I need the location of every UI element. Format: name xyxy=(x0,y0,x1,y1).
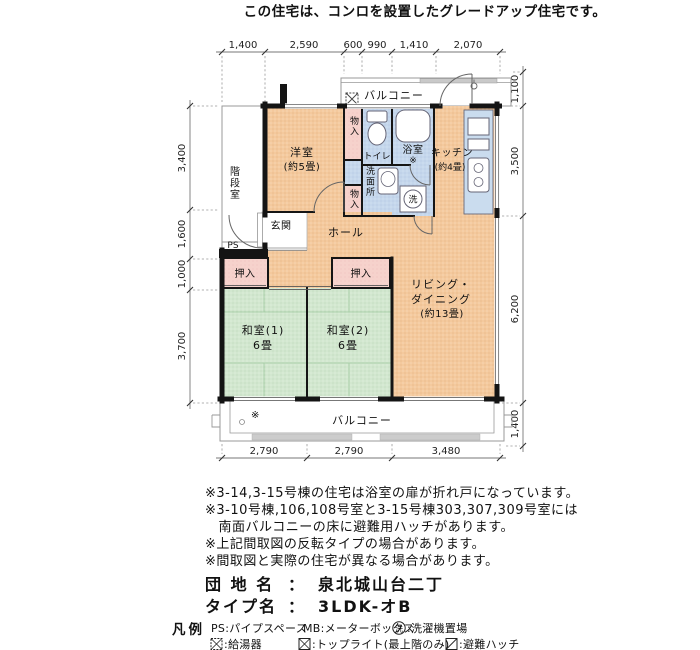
drain-icon xyxy=(240,420,245,425)
toilet-icon xyxy=(367,111,387,145)
label-closet-mid: 物入 xyxy=(348,188,359,210)
balcony-bottom: ※ バルコニー xyxy=(212,401,512,441)
label-kitchen: キッチン xyxy=(431,147,473,159)
label-living-1: リビング・ xyxy=(411,277,471,291)
estate-label: 団 地 名 xyxy=(205,575,274,594)
type-label: タイプ名 xyxy=(205,597,277,616)
svg-text:洗: 洗 xyxy=(395,623,403,633)
label-living-size: (約13畳) xyxy=(420,307,464,320)
dim-bottom-3: 3,480 xyxy=(432,446,461,457)
type-sep: ： xyxy=(288,597,306,616)
type-value: 3LDK-オB xyxy=(318,597,412,616)
legend-laundry: :洗濯機置場 xyxy=(407,621,468,635)
washing-machine-icon: 洗 xyxy=(400,186,426,212)
balcony-top-label: バルコニー xyxy=(364,89,424,102)
note-line-3: 南面バルコニーの床に避難用ハッチがあります。 xyxy=(205,519,514,535)
label-bath: 浴室 xyxy=(403,143,424,156)
dim-top-1: 1,400 xyxy=(229,40,258,51)
dim-top-5: 1,410 xyxy=(400,40,429,51)
note-line-5: ※間取図と実際の住宅が異なる場合があります。 xyxy=(205,553,499,569)
note-line-2: ※3-10号棟,106,108号室と3-15号棟303,307,309号室には xyxy=(205,502,578,518)
label-western-room: 洋室 xyxy=(290,145,314,159)
note-line-4: ※上記間取図の反転タイプの場合があります。 xyxy=(205,536,485,552)
label-japanese-room-2: 和室(2) xyxy=(327,323,370,337)
legend-toplight: :トップライト(最上階のみ) xyxy=(312,637,450,650)
stairwell-label: 階段室 xyxy=(228,166,240,201)
water-heater-icon xyxy=(346,93,358,105)
label-entrance: 玄関 xyxy=(271,219,292,232)
toplight-symbol-icon xyxy=(299,639,310,650)
label-hall: ホール xyxy=(328,226,364,239)
label-washroom: 洗面所 xyxy=(364,165,375,198)
label-oshiire-2: 押入 xyxy=(351,267,372,280)
legend: 凡例 PS:パイプスペース MB:メーターボックス 洗 :洗濯機置場 :給湯器 … xyxy=(172,621,520,650)
label-toilet: トイレ xyxy=(363,152,390,162)
dim-left-2: 1,600 xyxy=(177,220,188,249)
note-line-1: ※3-14,3-15号棟の住宅は浴室の扉が折れ戸になっています。 xyxy=(205,485,579,501)
bathtub-icon xyxy=(396,110,430,142)
dim-left-3: 1,000 xyxy=(177,260,188,289)
dim-bottom-2: 2,790 xyxy=(335,446,364,457)
washbasin-icon xyxy=(378,168,398,194)
kitchen-counter-icon xyxy=(464,110,493,214)
dim-bottom-1: 2,790 xyxy=(250,446,279,457)
page-title: この住宅は、コンロを設置したグレードアップ住宅です。 xyxy=(244,3,607,20)
legend-heater: :給湯器 xyxy=(224,637,262,650)
notes: ※3-14,3-15号棟の住宅は浴室の扉が折れ戸になっています。 ※3-10号棟… xyxy=(205,485,579,569)
label-ps: PS xyxy=(227,241,238,251)
entrance-door-leaf xyxy=(258,213,263,247)
heater-symbol-icon xyxy=(211,639,222,650)
dim-left-4: 3,700 xyxy=(177,332,188,361)
legend-ps: PS:パイプスペース xyxy=(211,622,307,635)
balcony-divider-pillar xyxy=(280,84,287,106)
label-bath-mark: ※ xyxy=(409,156,417,166)
legend-title: 凡例 xyxy=(172,621,205,638)
dim-top-2: 2,590 xyxy=(290,40,319,51)
label-closet-top: 物入 xyxy=(348,115,359,137)
dim-top-4: 990 xyxy=(367,40,386,51)
estate-info: 団 地 名 ： 泉北城山台二丁 タイプ名 ： 3LDK-オB xyxy=(205,575,444,616)
label-japanese-room-2-size: 6畳 xyxy=(338,339,358,352)
label-japanese-room-1-size: 6畳 xyxy=(253,339,273,352)
dim-right-2: 3,500 xyxy=(510,147,521,176)
balcony-bottom-label: バルコニー xyxy=(332,414,392,427)
dim-left-1: 3,400 xyxy=(177,144,188,173)
label-kitchen-size: (約4畳) xyxy=(435,161,466,173)
label-oshiire-1: 押入 xyxy=(235,267,256,280)
floor-plan-drawing: この住宅は、コンロを設置したグレードアップ住宅です。 1,400 2,590 6… xyxy=(0,0,700,650)
label-living-2: ダイニング xyxy=(411,292,471,306)
balcony-top: バルコニー xyxy=(341,78,511,106)
dim-right-1: 1,100 xyxy=(510,75,521,104)
svg-text:洗: 洗 xyxy=(408,194,417,206)
ps-duct-block xyxy=(219,249,268,258)
dim-top-6: 2,070 xyxy=(454,40,483,51)
estate-sep: ： xyxy=(288,575,306,594)
legend-hatch: :避難ハッチ xyxy=(459,637,520,650)
floor-plan-page: この住宅は、コンロを設置したグレードアップ住宅です。 1,400 2,590 6… xyxy=(0,0,700,650)
label-western-size: (約5畳) xyxy=(284,160,321,173)
dim-top-3: 600 xyxy=(343,40,362,51)
dim-right-3: 6,200 xyxy=(510,295,521,324)
estate-value: 泉北城山台二丁 xyxy=(318,575,444,594)
balcony-note-mark: ※ xyxy=(251,410,260,421)
label-japanese-room-1: 和室(1) xyxy=(242,323,285,337)
